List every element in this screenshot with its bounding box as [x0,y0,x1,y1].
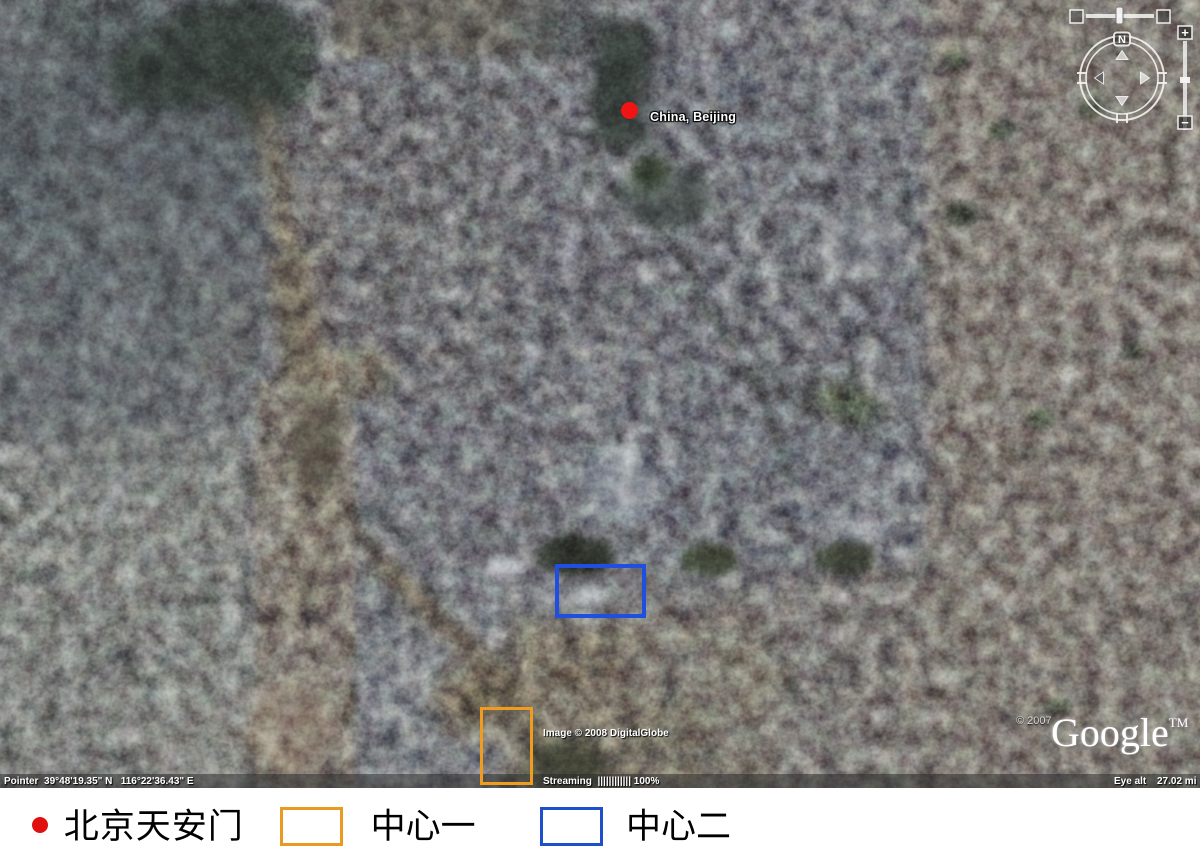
svg-text:N: N [1118,34,1126,46]
svg-text:−: − [1181,115,1189,130]
svg-text:+: + [1181,25,1189,40]
